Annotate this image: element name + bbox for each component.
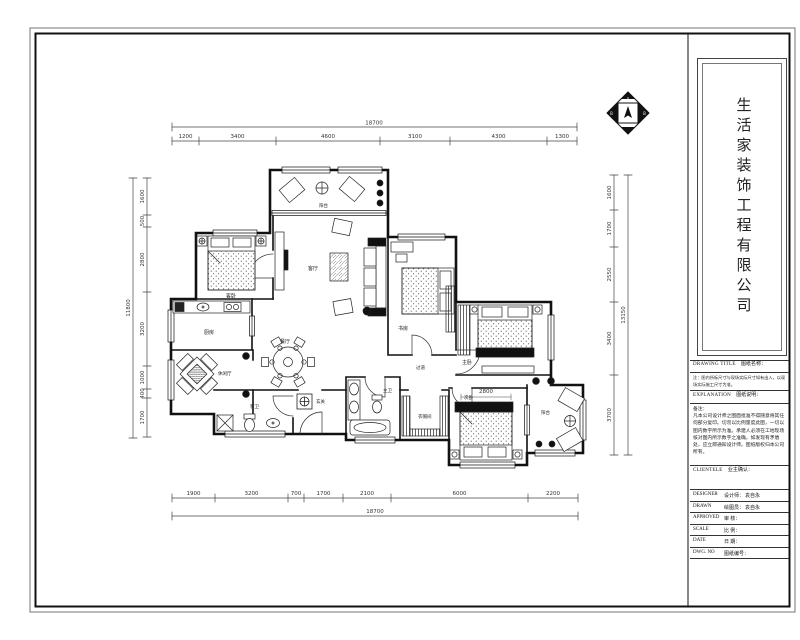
explanation-row: EXPLANATION 图纸说明：	[693, 393, 787, 400]
dim-top-seg: 3400	[231, 134, 245, 140]
dimension-chain-right: 1600 1700 2550 3400 3700 13150	[607, 175, 632, 455]
titleblock-divider	[690, 501, 789, 502]
dim-top-seg: 1300	[555, 134, 569, 140]
dim-left-seg: 1700	[140, 410, 146, 424]
dim-right-seg: 1700	[607, 221, 613, 235]
dim-bottom-total: 18700	[366, 509, 384, 515]
dim-left-seg: 400	[140, 388, 146, 399]
room-label-guest-bath: 客卫	[250, 403, 259, 410]
dim-top-seg: 1200	[179, 134, 193, 140]
field-approved: APPROVED 审 核：	[693, 515, 787, 522]
dim-left-total: 11800	[126, 299, 132, 317]
room-label-master-bedroom: 主卧	[462, 359, 472, 366]
titleblock-divider	[690, 390, 789, 391]
guest-bath-fixtures	[217, 414, 280, 432]
entry-cabinet	[297, 394, 312, 409]
compass-letter-top: A	[627, 97, 630, 102]
room-label-balcony-br: 阳台	[541, 409, 550, 416]
dim-left-seg: 3200	[140, 322, 146, 336]
study-furniture	[391, 242, 455, 332]
drawing-title-en: DRAWING TITLE	[693, 362, 736, 367]
field-drawn: DRAWN 绘图员： 袁自永	[693, 504, 787, 511]
dimension-chain-left: 11800 1600 500 2800 3200 1000 400 1700	[126, 178, 151, 438]
drawing-title-zh: 图纸名称：	[741, 362, 766, 367]
room-label-corridor: 过道	[416, 364, 425, 371]
dim-bottom-seg: 700	[291, 491, 302, 497]
explanation-en: EXPLANATION	[693, 393, 731, 398]
floor-plan-canvas: 18700 1200 3400 4600 3100 4300 1300 1900…	[0, 0, 800, 640]
room-label-second-bedroom: 次卧	[464, 394, 473, 401]
room-label-balcony-top: 阳台	[319, 202, 328, 209]
kids-bed-dim: 2800	[479, 389, 493, 395]
field-scale: SCALE 比 例：	[693, 527, 787, 534]
drawing-title-note: 注：图内所标尺寸与现场实际尺寸如有出入，以现 场实际施工尺寸为准。	[693, 374, 787, 388]
field-date: DATE 日 期：	[693, 538, 787, 545]
clientele-en: CLIENTELE	[693, 468, 723, 473]
kitchen-furniture	[173, 301, 250, 313]
clientele-zh: 业主确认：	[728, 468, 753, 473]
second-bedroom-furniture	[450, 394, 522, 460]
compass-letter-left: B	[610, 111, 613, 116]
dim-bottom-seg: 1700	[317, 491, 331, 497]
titleblock-divider	[690, 360, 789, 361]
dim-bottom-seg: 2200	[546, 491, 560, 497]
titleblock-divider	[690, 547, 789, 548]
dim-bottom-seg: 1900	[187, 491, 201, 497]
titleblock-divider	[690, 524, 789, 525]
titleblock-divider	[690, 558, 789, 559]
room-label-study: 书房	[398, 325, 408, 332]
compass-letter-right: B	[643, 111, 646, 116]
dim-right-seg: 1600	[607, 185, 613, 199]
dimension-chain-bottom: 1900 3200 700 1700 2100 6000 2200 18700	[172, 491, 578, 520]
room-label-living: 客厅	[308, 265, 318, 272]
company-name-box: 生活家装饰工程有限公司	[697, 58, 787, 356]
sheet-frame	[30, 28, 795, 612]
dim-top-seg: 3100	[408, 134, 422, 140]
room-label-guest-bedroom: 客卧	[226, 293, 236, 300]
room-label-entry: 玄关	[316, 398, 325, 405]
dim-top-seg: 4600	[321, 134, 335, 140]
titleblock-divider	[690, 372, 789, 373]
dim-left-seg: 500	[140, 215, 146, 226]
dim-left-seg: 1600	[140, 189, 146, 203]
dimension-chain-top: 18700 1200 3400 4600 3100 4300 1300	[172, 121, 577, 146]
room-label-kitchen: 厨房	[204, 329, 214, 336]
remark-title: 备注：	[693, 406, 787, 413]
dim-top-seg: 4300	[492, 134, 506, 140]
guest-bedroom-furniture	[197, 236, 266, 290]
field-dwg-no: DWG. NO 图纸编号：	[693, 550, 787, 557]
balcony-top-furniture	[279, 176, 365, 202]
titleblock-divider	[690, 403, 789, 404]
titleblock-divider	[690, 512, 789, 513]
remark-body: 凡本公司设计师之图面批准不得随意将其任何部分复印。切勿以比例量度此图，一切以图内…	[693, 413, 787, 456]
room-label-tea-room: 休闲厅	[218, 370, 232, 377]
titleblock-divider	[690, 489, 789, 490]
dim-left-seg: 1000	[140, 370, 146, 384]
dim-right-seg: 3400	[607, 331, 613, 345]
titleblock-divider	[690, 535, 789, 536]
room-label-dining: 餐厅	[280, 338, 290, 345]
drawing-sheet: 18700 1200 3400 4600 3100 4300 1300 1900…	[0, 0, 800, 640]
room-label-master-bath: 主卫	[383, 387, 392, 393]
dim-right-seg: 2550	[607, 267, 613, 281]
field-designer: DESIGNER 设计师： 袁自永	[693, 492, 787, 499]
orientation-symbol: A B B	[607, 92, 649, 134]
company-name: 生活家装饰工程有限公司	[735, 97, 750, 317]
designer-value: 袁自永	[745, 492, 760, 499]
tea-room-furniture	[167, 344, 249, 403]
explanation-zh: 图纸说明：	[736, 393, 761, 398]
remark-block: 备注： 凡本公司设计师之图面批准不得随意将其任何部分复印。切勿以比例量度此图，一…	[693, 406, 787, 456]
titleblock-divider	[690, 465, 789, 466]
dim-left-seg: 2800	[140, 252, 146, 266]
room-label-closet: 衣帽间	[418, 413, 432, 420]
dim-bottom-seg: 3200	[245, 491, 259, 497]
clientele-row: CLIENTELE 业主确认：	[693, 468, 787, 475]
dim-right-total: 13150	[621, 306, 627, 324]
dim-bottom-seg: 6000	[453, 491, 467, 497]
dim-top-total: 18700	[365, 121, 383, 127]
drawn-value: 袁自永	[745, 504, 760, 511]
drawing-title-row: DRAWING TITLE 图纸名称：	[693, 362, 787, 369]
dim-right-seg: 3700	[607, 408, 613, 422]
dim-bottom-seg: 2100	[360, 491, 374, 497]
